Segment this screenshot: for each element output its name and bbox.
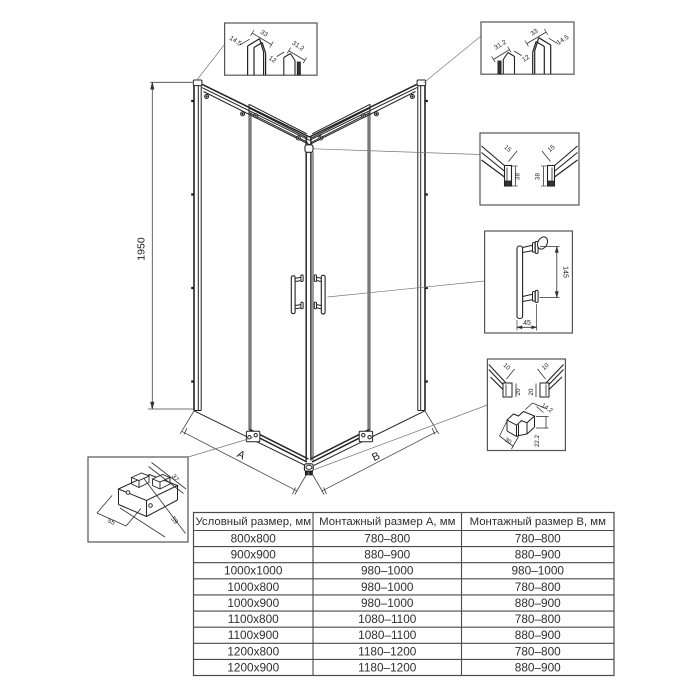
- svg-text:1100x900: 1100x900: [228, 628, 279, 642]
- svg-text:38: 38: [515, 173, 522, 181]
- svg-text:980–1000: 980–1000: [361, 564, 414, 578]
- svg-text:780–800: 780–800: [515, 612, 561, 626]
- svg-text:780–800: 780–800: [515, 532, 561, 546]
- svg-text:880–900: 880–900: [515, 596, 561, 610]
- svg-text:1200x800: 1200x800: [227, 644, 279, 658]
- svg-text:20: 20: [528, 388, 535, 395]
- svg-text:45: 45: [523, 320, 531, 327]
- svg-text:20: 20: [515, 388, 522, 395]
- svg-text:980–1000: 980–1000: [361, 580, 414, 594]
- svg-text:880–900: 880–900: [515, 660, 561, 674]
- svg-text:900x900: 900x900: [231, 548, 277, 562]
- svg-text:1950: 1950: [136, 237, 148, 261]
- svg-text:22.2: 22.2: [534, 434, 541, 447]
- svg-text:880–900: 880–900: [515, 548, 561, 562]
- svg-text:1180–1200: 1180–1200: [358, 644, 417, 658]
- svg-text:980–1000: 980–1000: [361, 596, 414, 610]
- svg-text:145: 145: [562, 266, 569, 278]
- svg-text:1200x900: 1200x900: [227, 660, 279, 674]
- svg-text:1000x900: 1000x900: [227, 596, 279, 610]
- svg-text:780–800: 780–800: [515, 644, 561, 658]
- svg-text:880–900: 880–900: [515, 628, 561, 642]
- svg-text:980–1000: 980–1000: [512, 564, 565, 578]
- svg-text:Монтажный размер В, мм: Монтажный размер В, мм: [470, 516, 606, 528]
- svg-text:Монтажный размер А, мм: Монтажный размер А, мм: [319, 516, 455, 528]
- svg-text:1100x800: 1100x800: [228, 612, 279, 626]
- svg-text:Условный размер, мм: Условный размер, мм: [195, 516, 311, 528]
- svg-text:780–800: 780–800: [515, 580, 561, 594]
- svg-text:38: 38: [535, 173, 542, 181]
- svg-text:1000x800: 1000x800: [227, 580, 279, 594]
- svg-text:800x800: 800x800: [231, 532, 277, 546]
- svg-text:1080–1100: 1080–1100: [358, 612, 417, 626]
- svg-text:780–800: 780–800: [364, 532, 410, 546]
- svg-text:1000x1000: 1000x1000: [224, 564, 283, 578]
- svg-text:880–900: 880–900: [364, 548, 410, 562]
- svg-text:1080–1100: 1080–1100: [358, 628, 417, 642]
- svg-text:1180–1200: 1180–1200: [358, 660, 417, 674]
